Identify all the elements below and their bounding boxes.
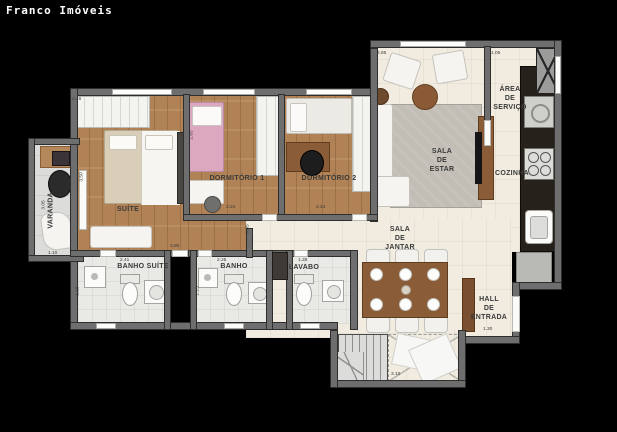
dining-chair [424,316,448,333]
shower-head [84,266,106,288]
dim-dorm1-left: 2.65 [189,130,194,139]
basin-icon [327,285,341,299]
dim-sala-estar-top: 2.85 [377,51,386,56]
door-opening [262,214,277,221]
pillow [192,106,222,126]
window [203,89,255,95]
dim-servico-top: 1.05 [491,51,500,56]
tv [475,132,482,184]
suite-wardrobe [74,96,150,128]
window [400,41,466,47]
dim-hall-width: 1.30 [483,327,492,332]
wall [370,40,562,48]
burner-icon [528,152,539,163]
shower-dot-icon [91,273,98,280]
door-opening [484,120,491,146]
staircase-winders [338,352,364,380]
toilet [296,282,312,306]
burner-icon [540,152,551,163]
vent-window [300,323,320,329]
door-opening [198,250,212,257]
label-banho-suite: BANHO SUÍTE [106,263,180,272]
window [555,56,561,94]
shower-dot-icon [204,274,211,281]
label-varanda: VARANDA [48,175,57,245]
brand-logo-text: Franco Imóveis [6,4,113,18]
floor-plan: Franco Imóveis [0,0,617,432]
dim-varanda-left: 3.05 [41,200,46,209]
dim-stairs-width: 3.10 [391,372,400,377]
dim-banho-left: 1.15 [195,286,200,295]
label-sala-jantar: SALA DE JANTAR [372,226,428,252]
dim-suite-left: 3.50 [79,172,84,181]
plate [427,298,440,311]
dim-banho-suite-top: 2.41 [120,258,129,263]
basin-icon [253,287,267,301]
laptop [52,151,70,166]
dim-dorm1-bottom: 2.24 [226,205,235,210]
coffee-table [412,84,438,110]
plate [399,298,412,311]
dining-chair [366,316,390,333]
dim-corridor: 0.85 [245,224,250,233]
wall [330,380,466,388]
wall [164,250,171,330]
dining-chair [395,316,419,333]
vent-window [224,323,244,329]
suite-dresser [90,226,152,248]
dim-varanda-bottom: 1.10 [48,251,57,256]
label-lavabo: LAVABO [280,264,328,273]
wall [183,214,378,221]
sink-basin [530,216,548,239]
toilet [226,282,242,306]
dorm2-chair [300,150,324,176]
window [112,89,172,95]
wall [330,330,338,388]
vent-window [96,323,116,329]
wall [28,138,80,145]
plate [427,268,440,281]
wall [278,94,285,218]
door-opening [294,250,308,257]
label-sala-estar: SALA DE ESTAR [414,148,470,174]
dim-suite-bottom: 3.80 [170,244,179,249]
dim-banho-suite-left: 1.15 [75,286,80,295]
window [306,89,352,95]
label-dormitorio1: DORMITÓRIO 1 [198,175,276,184]
door-opening [100,250,116,257]
label-banho: BANHO [212,263,256,272]
label-suite: SUÍTE [102,206,154,215]
pillow [145,135,173,150]
wall [370,48,378,222]
door-opening [352,214,367,221]
dim-suite-top: 2.46 [72,97,81,102]
dim-banho-top: 2.26 [217,258,226,263]
suite-bed [104,130,178,204]
door-opening [172,250,188,257]
table-centerpiece [401,285,411,295]
plate [370,268,383,281]
dim-lavabo-top: 1.28 [298,258,307,263]
wall [458,336,520,344]
burner-icon [540,165,551,176]
armchair [432,49,469,84]
dim-dorm2-bottom: 2.24 [316,205,325,210]
pillow [109,135,137,150]
wall [183,94,190,218]
plate [370,298,383,311]
dorm2-bed [286,98,352,134]
dorm1-chair [204,196,221,213]
toilet [122,282,138,306]
dorm1-closet [256,96,279,176]
plate [399,268,412,281]
entry-landing [516,252,552,284]
pillow [290,103,307,132]
label-cozinha: COZINHA [488,170,536,179]
kitchen-sink [525,210,553,244]
label-hall: HALL DE ENTRADA [458,296,520,322]
wall [350,250,358,330]
wall [28,138,35,262]
basin-icon [149,285,164,300]
lavabo-sink [322,280,344,302]
label-area-servico: ÁREA DE SERVIÇO [482,86,538,112]
label-dormitorio2: DORMITÓRIO 2 [290,175,368,184]
